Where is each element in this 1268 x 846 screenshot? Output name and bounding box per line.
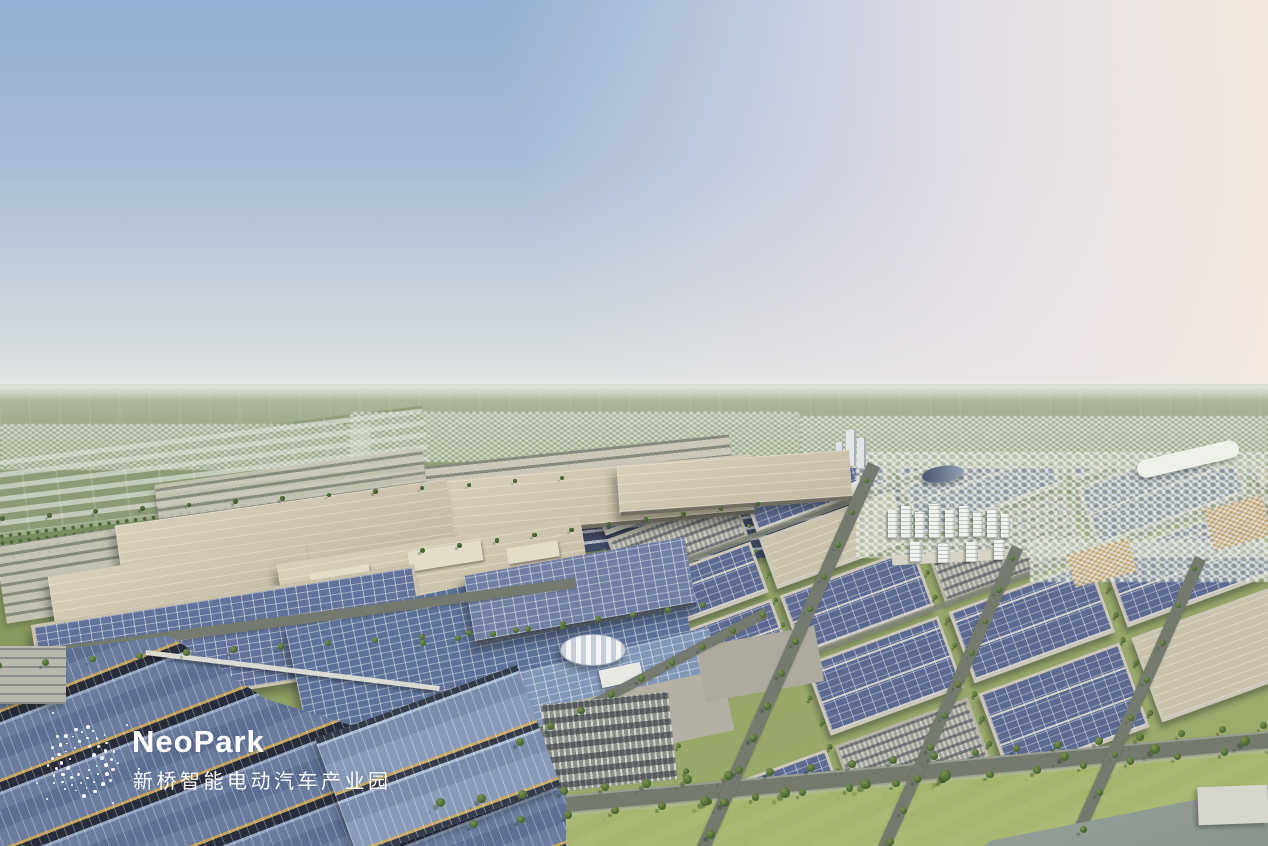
logo-dot xyxy=(82,794,86,798)
tree xyxy=(327,493,331,497)
residential-tower xyxy=(888,510,898,538)
residential-tower xyxy=(959,506,970,537)
logo-dot xyxy=(65,751,67,753)
residential-tower xyxy=(901,506,912,538)
residential-tower xyxy=(915,512,925,538)
tree xyxy=(1127,757,1134,764)
tree xyxy=(516,738,524,746)
tree xyxy=(886,838,894,846)
logo-dot xyxy=(59,743,63,747)
tree xyxy=(826,743,834,751)
tree xyxy=(630,612,636,618)
tree xyxy=(971,690,979,698)
logo-dot xyxy=(81,731,83,733)
tree xyxy=(756,502,760,506)
residential-tower xyxy=(929,504,941,538)
logo-dot xyxy=(60,761,64,765)
tree xyxy=(1054,741,1062,749)
tree xyxy=(233,499,238,504)
logo-dot xyxy=(113,750,115,752)
tree xyxy=(700,796,710,806)
tree xyxy=(372,637,378,643)
tree xyxy=(773,597,779,603)
tree xyxy=(658,802,666,810)
tree xyxy=(940,770,951,781)
logo-dot xyxy=(56,735,59,738)
logo-dot xyxy=(78,740,80,742)
tree xyxy=(669,659,676,666)
tree xyxy=(1033,766,1040,773)
tree xyxy=(564,811,572,819)
logo-dot xyxy=(93,790,97,794)
logo-dot xyxy=(53,782,55,784)
residential-tower xyxy=(938,544,950,563)
logo-dot xyxy=(111,768,114,771)
logo-dot xyxy=(86,725,90,729)
tree xyxy=(373,489,377,493)
logo-dot xyxy=(96,765,98,767)
logo-dot xyxy=(126,724,128,726)
residential-tower xyxy=(910,542,922,562)
logo-dot xyxy=(66,766,70,770)
tree xyxy=(140,506,145,511)
logo-dot xyxy=(97,773,99,775)
tree xyxy=(1112,611,1119,618)
logo-dot xyxy=(61,773,64,776)
residential-tower xyxy=(1001,514,1010,538)
logo-dot xyxy=(104,749,107,752)
tree xyxy=(532,533,537,538)
tree xyxy=(230,646,237,653)
tree xyxy=(848,760,856,768)
tree xyxy=(560,621,566,627)
tree xyxy=(1105,586,1112,593)
tree xyxy=(1150,744,1160,754)
logo-dot xyxy=(88,745,91,748)
tree xyxy=(420,640,426,646)
tree xyxy=(1160,640,1166,646)
tree xyxy=(807,764,815,772)
tree xyxy=(986,771,993,778)
logo-dot xyxy=(52,712,54,714)
tree xyxy=(806,695,813,702)
tree xyxy=(1128,715,1134,721)
tree xyxy=(560,476,564,480)
tree xyxy=(766,572,772,578)
brand-wordmark: NeoPark xyxy=(132,726,265,757)
tree xyxy=(280,496,285,501)
tree xyxy=(1146,709,1154,717)
highrise-tower xyxy=(857,438,866,468)
tree xyxy=(760,612,766,618)
tree xyxy=(1095,737,1102,744)
tree xyxy=(42,659,49,666)
tree xyxy=(864,478,869,483)
tree xyxy=(457,543,462,548)
tree xyxy=(724,771,732,779)
tree xyxy=(835,542,841,548)
rooftop-unit xyxy=(407,540,483,571)
logo-dot xyxy=(101,782,105,786)
logo-dot xyxy=(74,728,78,732)
tree xyxy=(1219,726,1226,733)
tree xyxy=(278,643,285,650)
tree xyxy=(1221,748,1228,755)
logo-dot xyxy=(64,788,66,790)
tree xyxy=(1060,752,1069,761)
logo-dot xyxy=(109,779,112,782)
logo-dot xyxy=(55,767,58,770)
tree xyxy=(914,775,921,782)
tree xyxy=(419,634,425,640)
tree xyxy=(683,775,691,783)
tree xyxy=(470,820,478,828)
scene-aerial-render: NeoPark 新桥智能电动汽车产业园 xyxy=(0,0,1268,846)
tree xyxy=(183,649,190,656)
logo-dot xyxy=(57,753,61,757)
logo-dot xyxy=(72,736,74,738)
logo-dot xyxy=(46,798,48,800)
logo-dot xyxy=(88,769,90,771)
logo-dot xyxy=(53,774,55,776)
logo-dot xyxy=(80,782,82,784)
tree xyxy=(0,516,5,521)
tree xyxy=(136,653,143,660)
tree xyxy=(730,628,736,634)
logo-dot xyxy=(70,776,73,779)
tree xyxy=(682,768,689,775)
tree xyxy=(675,743,682,750)
logo-dot xyxy=(86,737,88,739)
logo-dot xyxy=(105,772,109,776)
tree xyxy=(577,707,585,715)
tree xyxy=(951,642,958,649)
tree xyxy=(720,798,729,807)
logo-dot xyxy=(51,746,54,749)
residential-tower xyxy=(987,509,998,538)
tree xyxy=(924,569,930,575)
tree xyxy=(780,787,790,797)
logo-dot xyxy=(96,737,98,739)
tree xyxy=(1260,722,1267,729)
logo-dot xyxy=(86,777,88,779)
tree xyxy=(1240,736,1250,746)
tree xyxy=(1192,566,1197,571)
dot-swarm-logo-icon xyxy=(40,716,130,806)
tree xyxy=(1119,636,1127,644)
residential-tower xyxy=(966,542,978,562)
tree xyxy=(525,626,531,632)
tree xyxy=(644,517,648,521)
tree xyxy=(846,784,854,792)
residential-tower xyxy=(945,510,955,538)
tree xyxy=(1132,659,1140,667)
tree xyxy=(719,507,723,511)
parking-lot xyxy=(541,692,677,793)
logo-dot xyxy=(97,745,100,748)
logo-dot xyxy=(117,762,119,764)
logo-dot xyxy=(36,782,38,784)
tree xyxy=(766,768,774,776)
logo-dot xyxy=(66,743,68,745)
logo-dot xyxy=(64,734,68,738)
tree xyxy=(420,548,425,553)
tree xyxy=(706,830,715,839)
tree xyxy=(860,779,871,790)
distant-city-low xyxy=(1030,540,1268,582)
logo-dot xyxy=(69,758,71,760)
tree xyxy=(749,734,757,742)
tree xyxy=(969,650,975,656)
tree xyxy=(1096,789,1103,796)
building-pad xyxy=(1197,785,1268,825)
logo-dot xyxy=(104,734,106,736)
tree xyxy=(569,528,574,533)
logo-dot xyxy=(77,773,80,776)
tree xyxy=(1178,730,1185,737)
logo-dot xyxy=(75,790,77,792)
parking-garage xyxy=(0,646,66,704)
tree xyxy=(490,631,496,637)
horizon-haze xyxy=(0,376,1268,400)
tree xyxy=(611,807,619,815)
watermark: NeoPark 新桥智能电动汽车产业园 xyxy=(40,714,440,810)
tree xyxy=(607,522,611,526)
tree xyxy=(752,793,760,801)
tree xyxy=(547,722,555,730)
tree xyxy=(495,538,500,543)
logo-dot xyxy=(112,802,114,804)
tree xyxy=(700,602,706,608)
logo-dot xyxy=(105,742,107,744)
tree xyxy=(642,779,651,788)
logo-dot xyxy=(74,747,76,749)
logo-dot xyxy=(47,764,49,766)
tree xyxy=(47,513,52,518)
logo-dot xyxy=(93,781,95,783)
tree xyxy=(941,713,948,720)
logo-dot xyxy=(110,758,113,761)
residential-tower xyxy=(973,512,983,537)
logo-dot xyxy=(92,753,96,757)
tree xyxy=(638,675,645,682)
tree xyxy=(978,715,986,723)
tree xyxy=(1080,826,1087,833)
tree xyxy=(892,780,899,787)
tree xyxy=(792,638,799,645)
brand-subtitle-chinese: 新桥智能电动汽车产业园 xyxy=(133,771,392,791)
logo-dot xyxy=(61,781,63,783)
tree xyxy=(467,483,471,487)
tree xyxy=(665,607,671,613)
tree xyxy=(746,524,751,529)
logo-dot xyxy=(86,787,88,789)
tree xyxy=(699,644,706,651)
tree xyxy=(763,702,771,710)
tree xyxy=(996,587,1001,592)
round-building xyxy=(560,634,626,666)
logo-dot xyxy=(104,763,108,767)
tree xyxy=(1010,556,1015,561)
tree xyxy=(955,681,961,687)
logo-dot xyxy=(71,784,73,786)
residential-tower xyxy=(994,540,1005,560)
logo-dot xyxy=(92,730,94,732)
tree xyxy=(1136,733,1143,740)
tree xyxy=(821,574,827,580)
logo-dot xyxy=(100,756,104,760)
tree xyxy=(608,691,615,698)
logo-dot xyxy=(51,757,54,760)
sky xyxy=(0,0,1268,392)
